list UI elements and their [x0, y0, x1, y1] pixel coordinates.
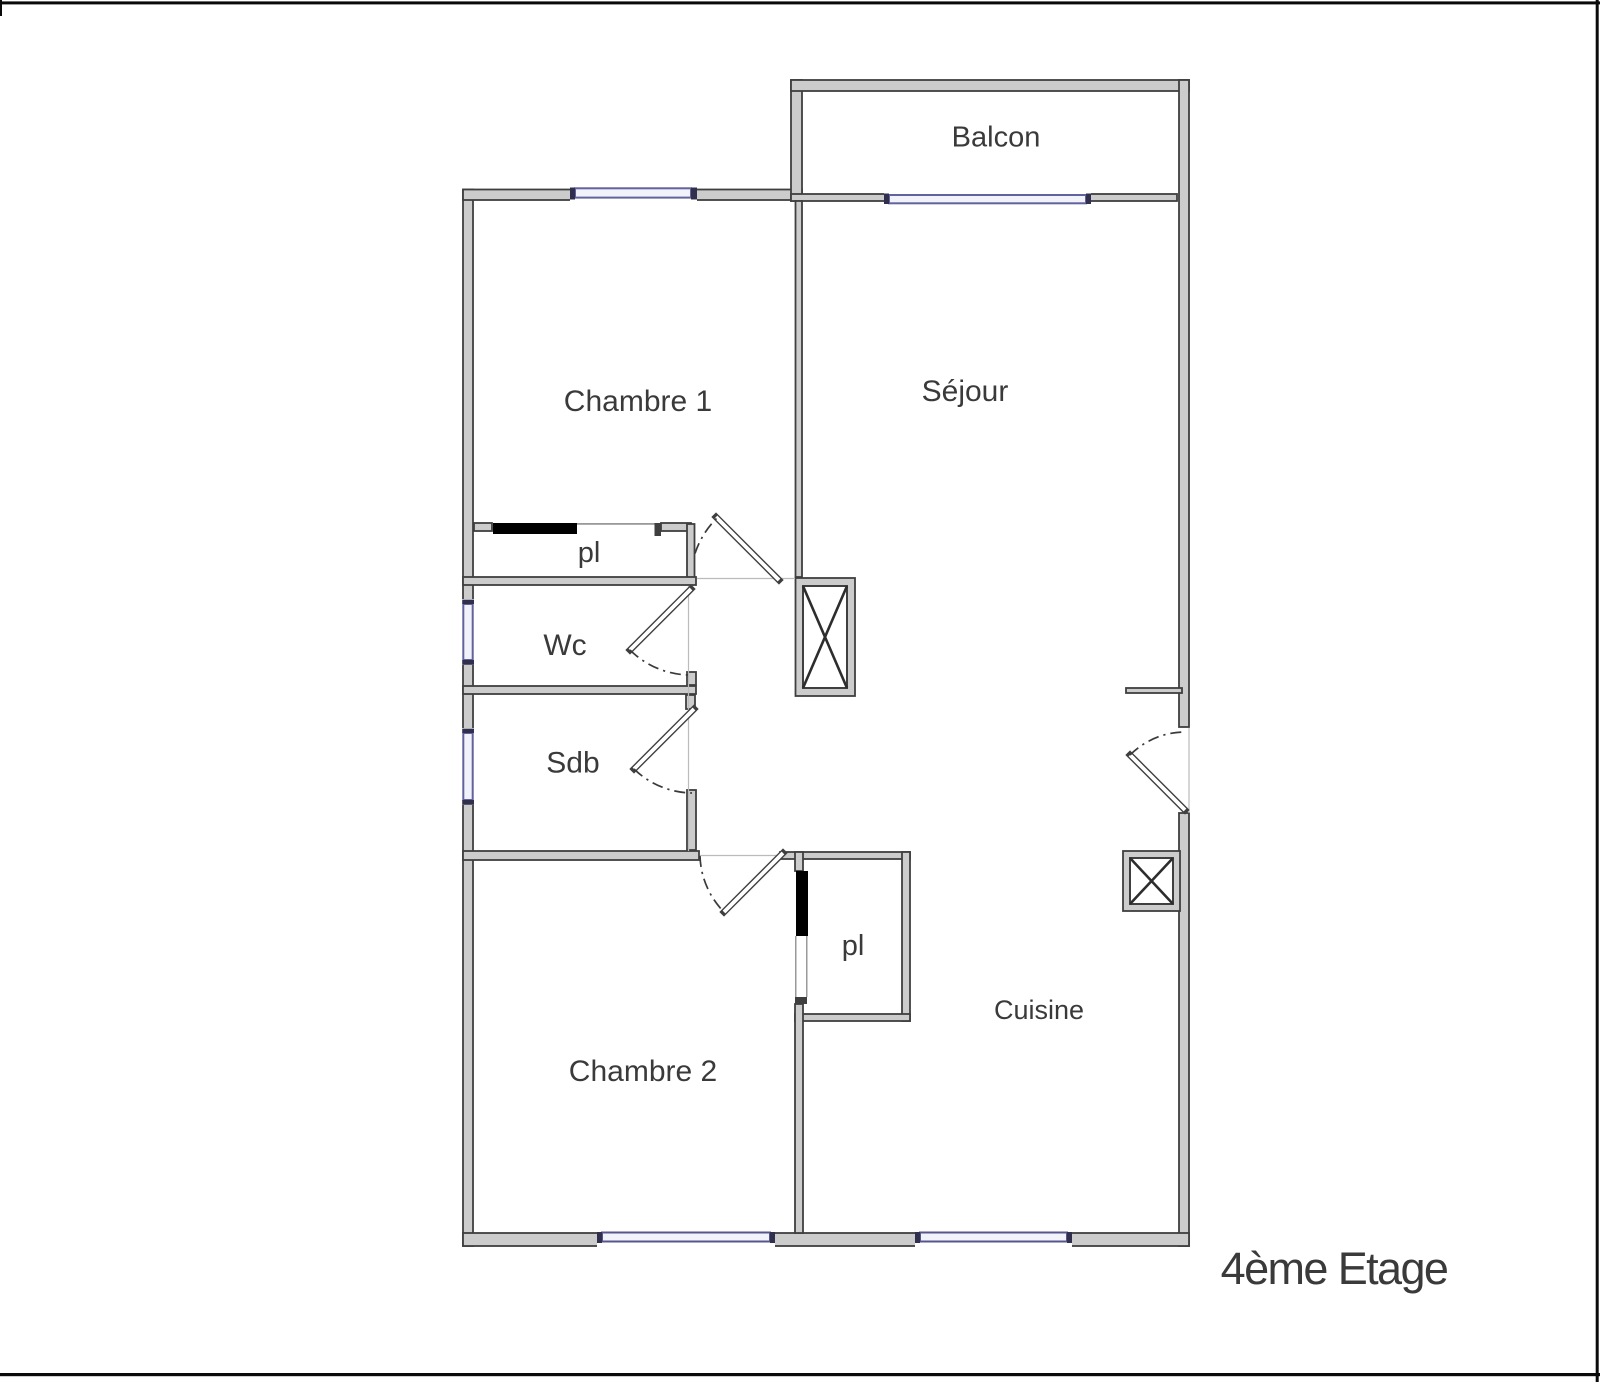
svg-text:4ème Etage: 4ème Etage — [1221, 1243, 1448, 1294]
svg-text:pl: pl — [578, 537, 601, 569]
svg-text:Balcon: Balcon — [952, 122, 1041, 154]
svg-text:pl: pl — [842, 930, 865, 962]
svg-text:Séjour: Séjour — [922, 375, 1009, 408]
svg-text:Sdb: Sdb — [546, 747, 599, 780]
svg-text:Wc: Wc — [543, 629, 586, 662]
svg-text:Chambre 1: Chambre 1 — [564, 385, 712, 418]
svg-text:Chambre 2: Chambre 2 — [569, 1055, 717, 1088]
svg-text:Cuisine: Cuisine — [994, 995, 1084, 1025]
